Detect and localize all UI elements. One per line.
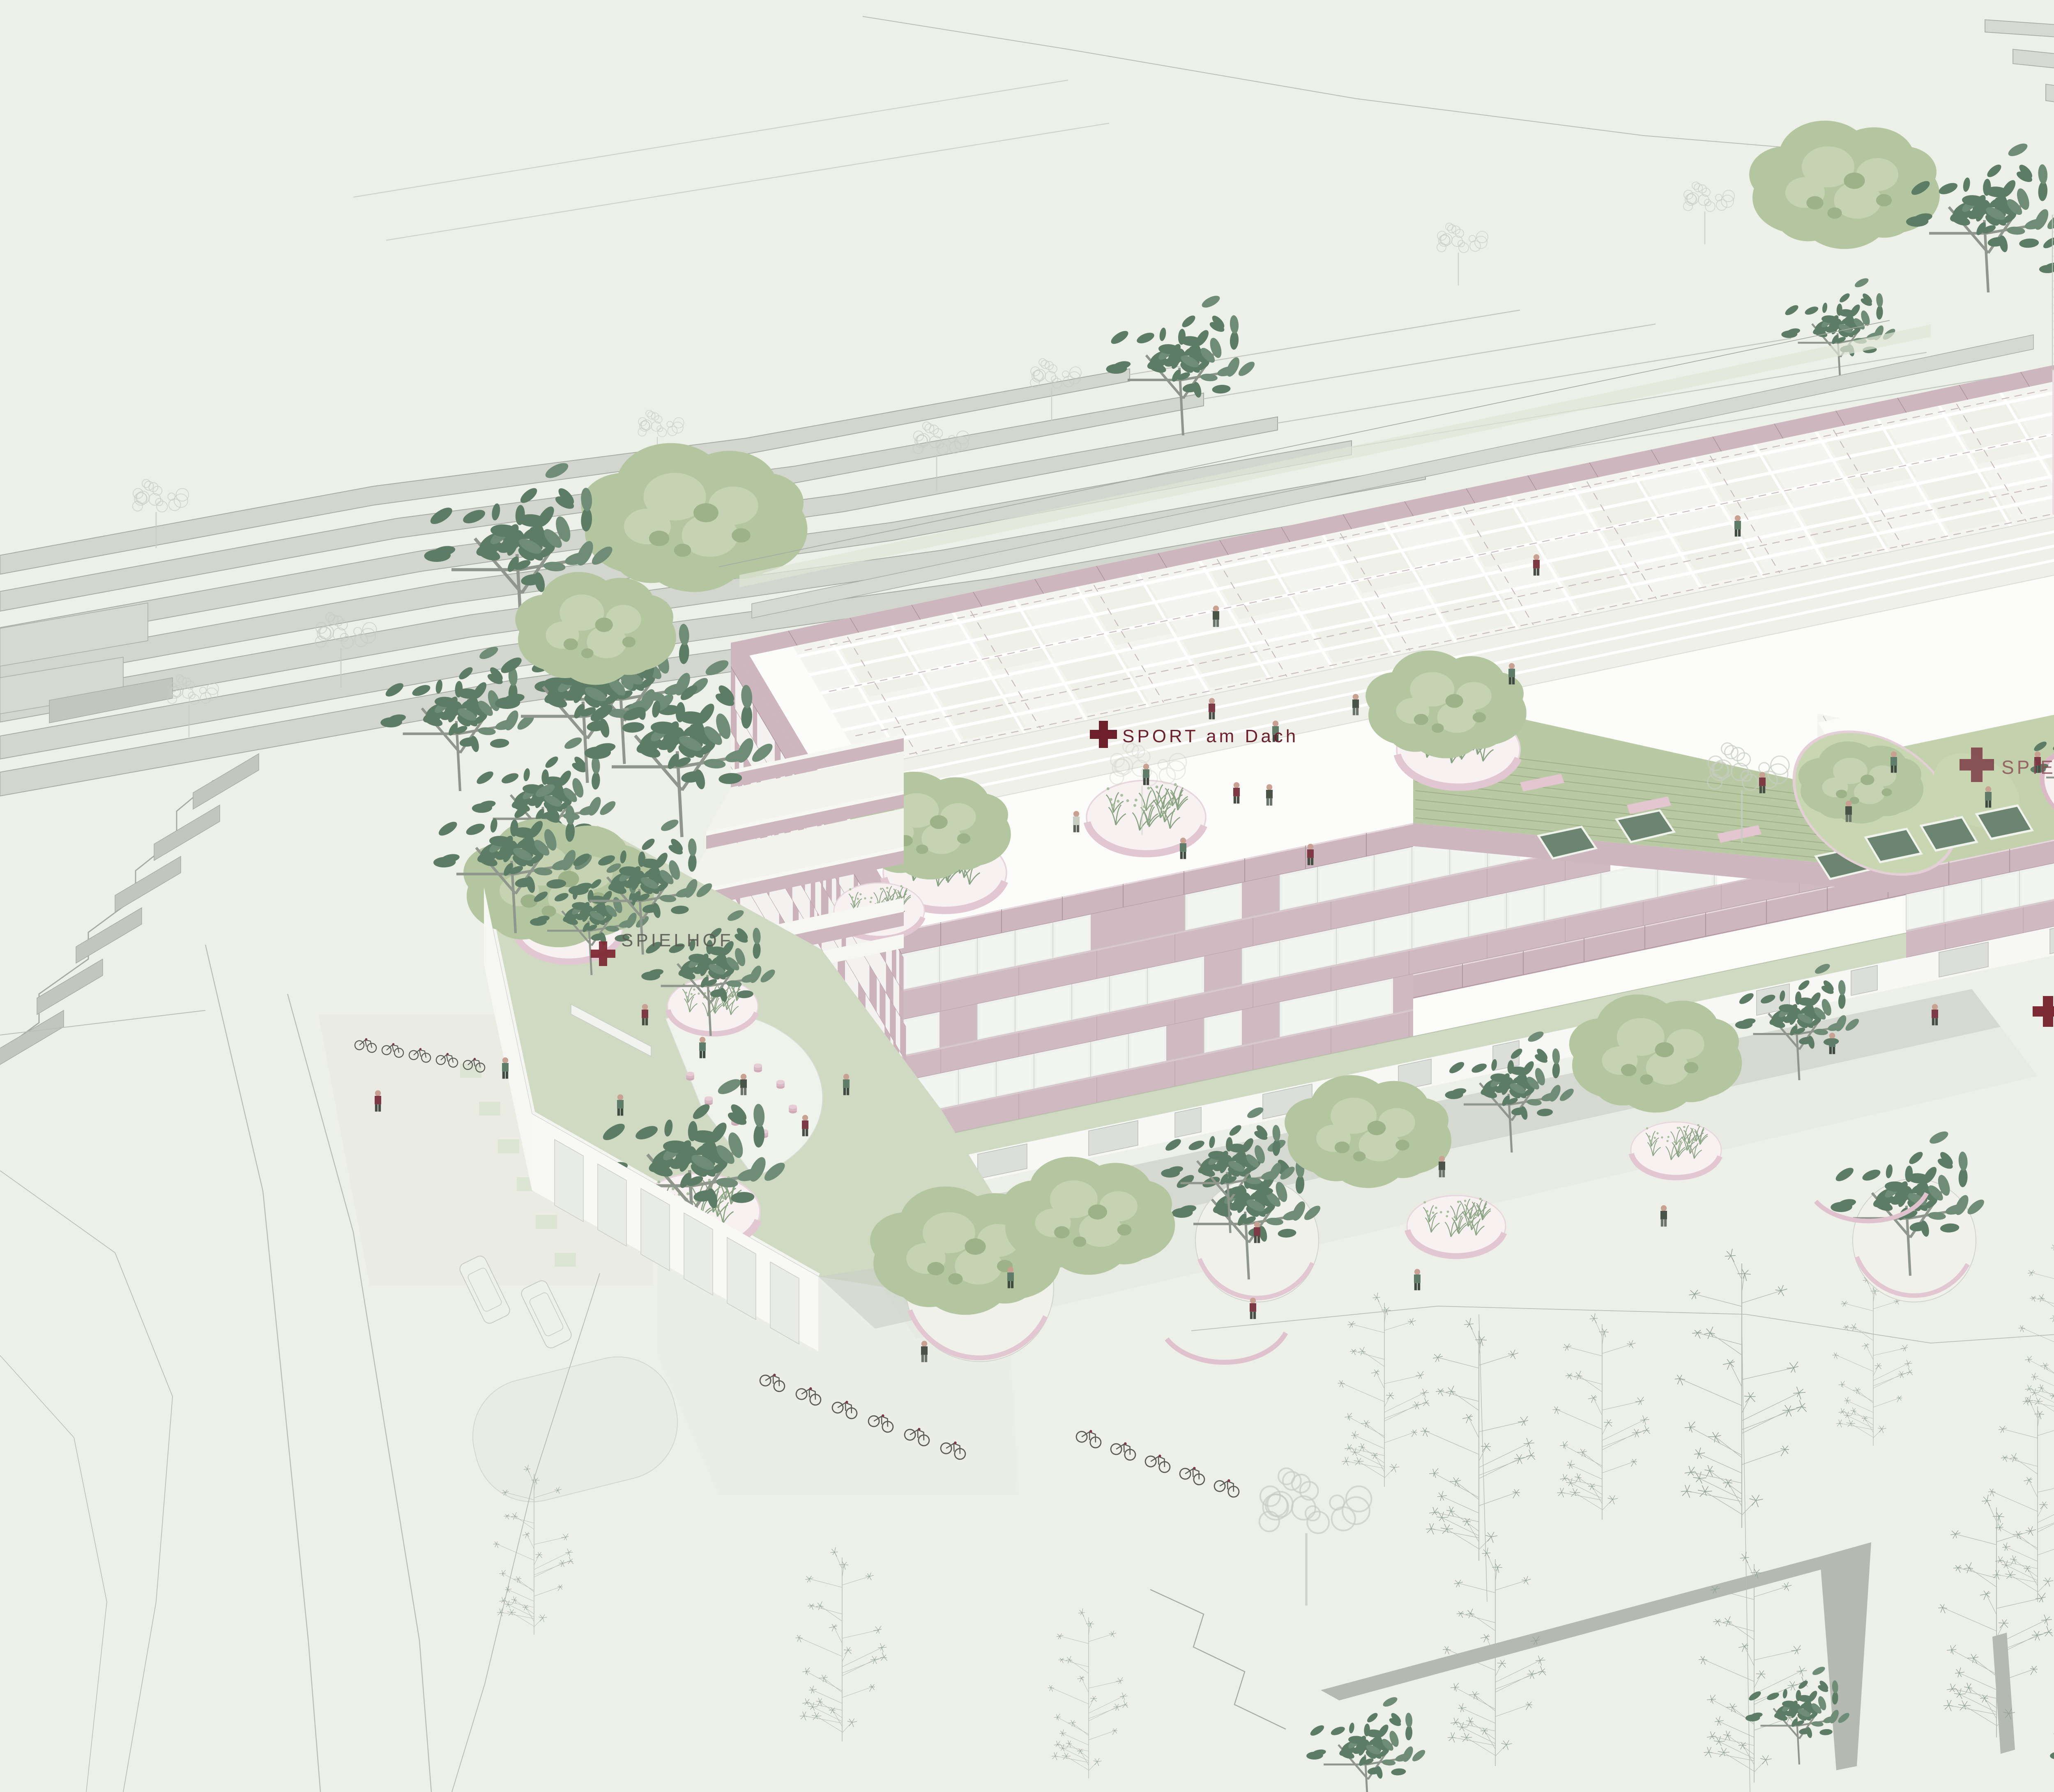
- svg-text:SPIELHOF 2.STUFE: SPIELHOF 2.STUFE: [2001, 757, 2054, 778]
- svg-text:SPORT am Dach: SPORT am Dach: [1122, 726, 1299, 746]
- svg-text:SPIELHOF: SPIELHOF: [621, 930, 734, 950]
